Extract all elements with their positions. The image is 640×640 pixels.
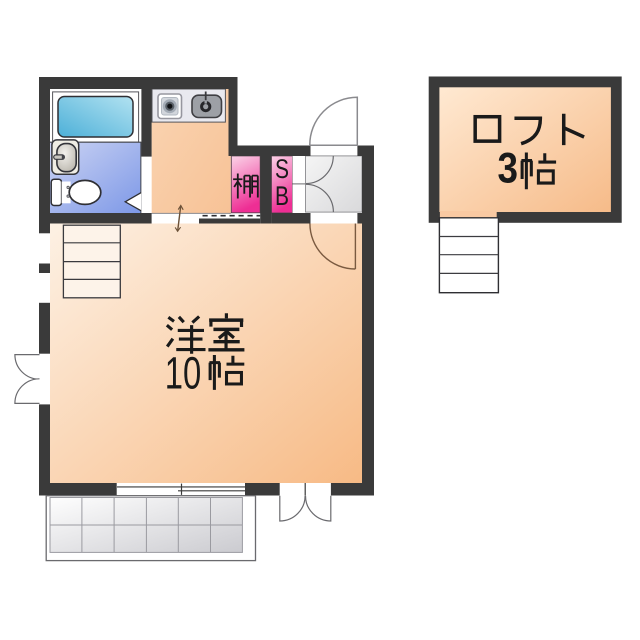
svg-text:S: S xyxy=(275,154,289,184)
svg-text:B: B xyxy=(275,181,289,211)
svg-text:3: 3 xyxy=(498,144,519,192)
svg-text:10: 10 xyxy=(165,348,202,399)
